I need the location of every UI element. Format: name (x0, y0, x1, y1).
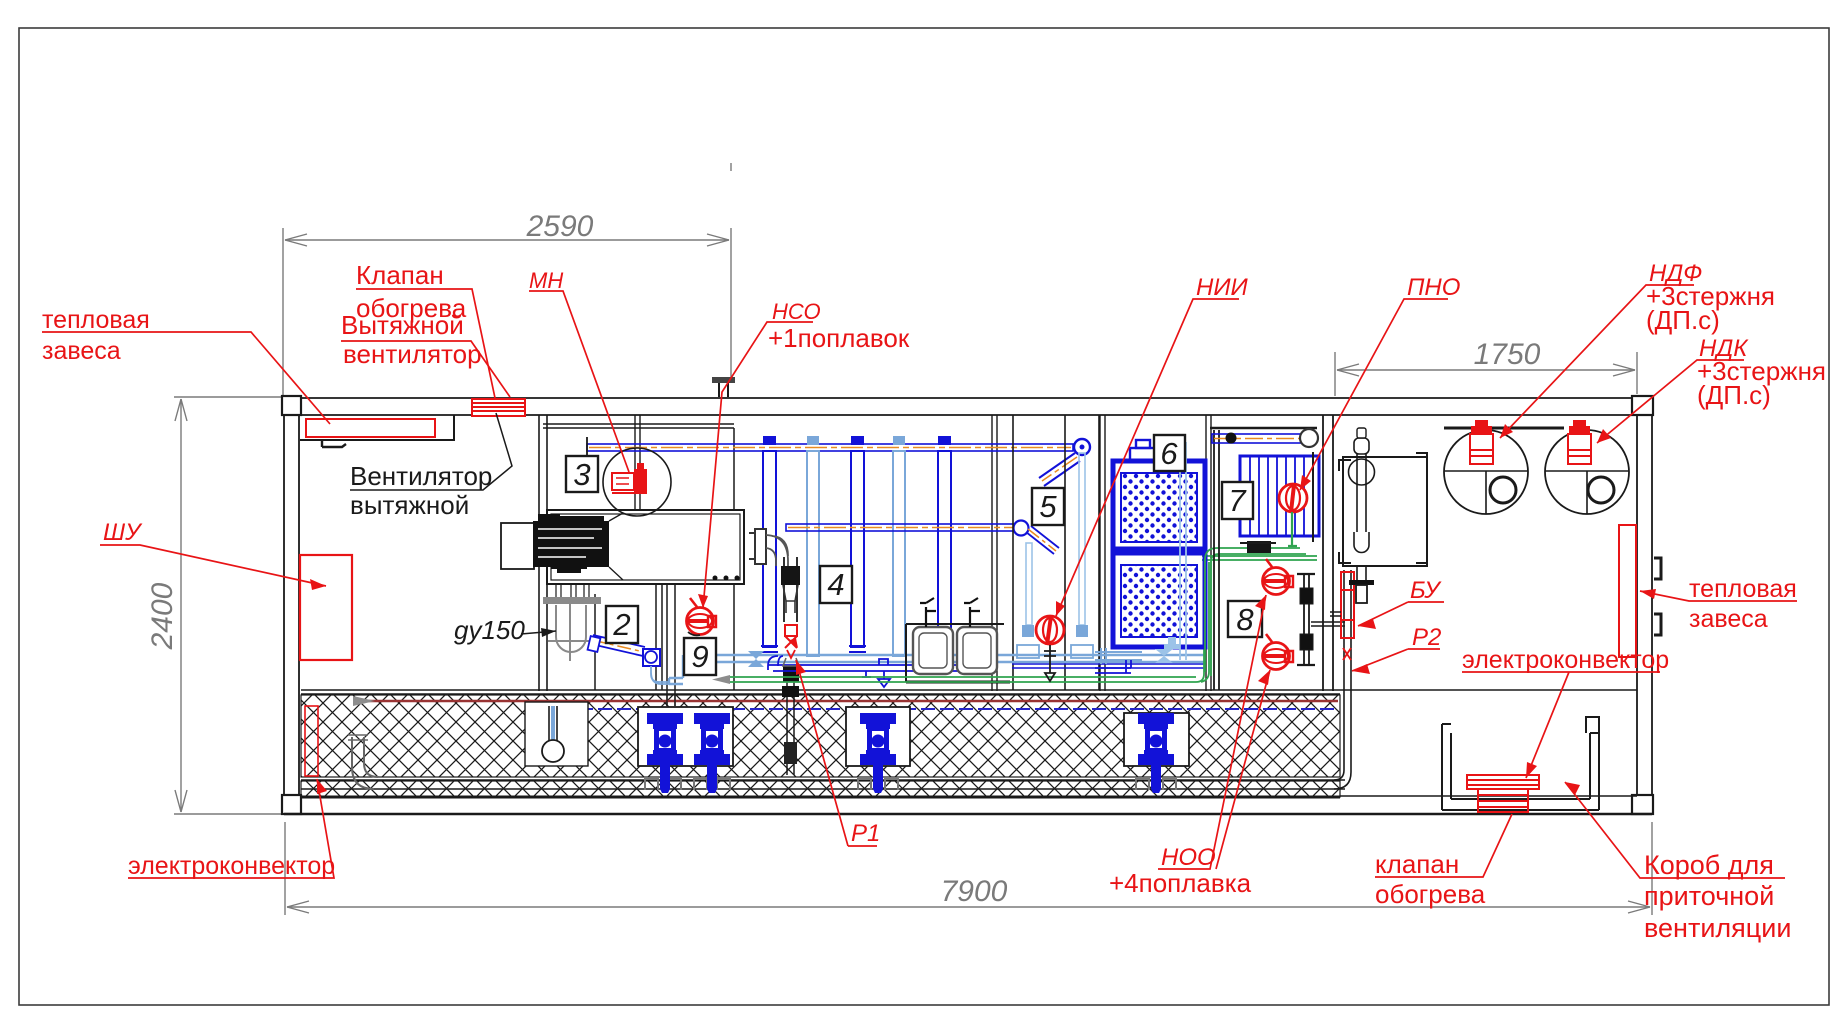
svg-text:gy150: gy150 (454, 615, 525, 645)
svg-text:Клапан: Клапан (356, 260, 444, 290)
svg-text:вытяжной: вытяжной (350, 490, 469, 520)
svg-text:завеса: завеса (42, 337, 121, 365)
svg-text:+1поплавок: +1поплавок (768, 323, 910, 353)
svg-text:7: 7 (1228, 483, 1247, 518)
svg-text:Короб для: Короб для (1644, 850, 1774, 880)
svg-text:Вентилятор: Вентилятор (350, 461, 492, 491)
svg-text:6: 6 (1160, 436, 1178, 471)
svg-text:(ДП.с): (ДП.с) (1697, 380, 1771, 410)
svg-text:БУ: БУ (1410, 577, 1442, 604)
svg-text:Вытяжной: Вытяжной (341, 310, 464, 340)
svg-text:Р1: Р1 (851, 820, 880, 847)
svg-text:2400: 2400 (146, 582, 179, 650)
svg-text:обогрева: обогрева (1375, 879, 1486, 909)
svg-text:+4поплавка: +4поплавка (1109, 868, 1252, 898)
svg-text:тепловая: тепловая (1689, 575, 1797, 603)
svg-text:электроконвектор: электроконвектор (1462, 646, 1669, 674)
svg-text:8: 8 (1236, 602, 1254, 637)
svg-text:5: 5 (1039, 489, 1057, 524)
svg-text:2590: 2590 (526, 210, 594, 243)
svg-text:НОО: НОО (1161, 844, 1216, 871)
svg-text:1750: 1750 (1474, 338, 1541, 371)
svg-text:3: 3 (573, 457, 590, 492)
svg-text:9: 9 (691, 639, 708, 674)
svg-text:7900: 7900 (941, 875, 1008, 908)
svg-text:вентилятор: вентилятор (343, 339, 482, 369)
svg-text:Р2: Р2 (1412, 624, 1441, 651)
svg-text:завеса: завеса (1689, 605, 1768, 633)
svg-text:(ДП.с): (ДП.с) (1646, 305, 1720, 335)
svg-text:клапан: клапан (1375, 849, 1459, 879)
svg-text:тепловая: тепловая (42, 306, 150, 334)
svg-text:МН: МН (529, 268, 563, 293)
svg-text:НСО: НСО (772, 299, 821, 324)
svg-text:2: 2 (612, 607, 630, 642)
svg-text:4: 4 (827, 567, 844, 602)
svg-text:НИИ: НИИ (1196, 274, 1249, 301)
svg-text:электроконвектор: электроконвектор (128, 852, 335, 880)
svg-text:приточной: приточной (1644, 881, 1774, 911)
svg-text:вентиляции: вентиляции (1644, 913, 1791, 943)
svg-text:ШУ: ШУ (103, 519, 143, 546)
svg-text:ПНО: ПНО (1407, 274, 1460, 301)
